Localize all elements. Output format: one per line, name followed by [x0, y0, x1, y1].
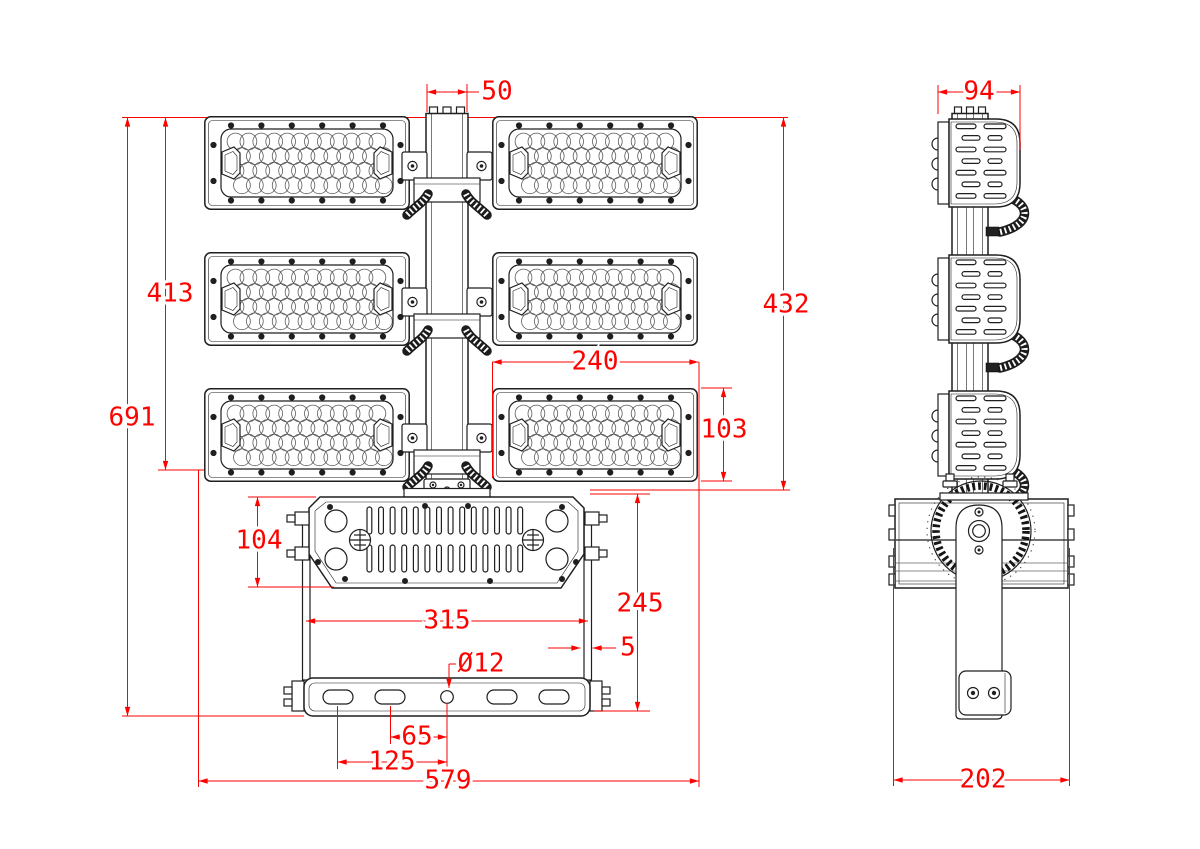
dim-yoke-arm-thickness-label: 5 — [620, 633, 636, 663]
dim-driver-box-height-label: 104 — [236, 526, 283, 556]
led-module-front — [205, 389, 409, 481]
dim-module-width-label: 240 — [572, 347, 619, 377]
side-view — [889, 107, 1074, 719]
led-module-side — [932, 391, 1020, 479]
arm-end-plate — [959, 671, 1011, 715]
technical-drawing: 50 413 691 432 240 103 104 315 245 — [0, 0, 1200, 849]
dim-modules-stack-height-label: 413 — [147, 279, 194, 309]
dim-pivot-to-base-height-label: 245 — [617, 589, 664, 619]
led-module-front — [205, 117, 409, 209]
dim-pole-top-width-label: 50 — [481, 77, 512, 107]
led-module-front — [205, 253, 409, 345]
led-module-front — [493, 117, 697, 209]
dim-overall-width-label: 579 — [425, 766, 472, 796]
mounting-pole — [426, 107, 468, 499]
led-module-side — [932, 119, 1020, 207]
driver-box — [287, 497, 607, 588]
led-module-side — [932, 255, 1020, 343]
dim-yoke-inner-width-label: 315 — [424, 606, 471, 636]
led-module-front — [493, 389, 697, 481]
dim-module-height-label: 103 — [701, 415, 748, 445]
drawing-page: 50 413 691 432 240 103 104 315 245 — [0, 0, 1200, 849]
driver-box-side — [889, 474, 1074, 719]
dim-modules-to-driver-box-label: 432 — [763, 290, 810, 320]
led-module-front — [493, 253, 697, 345]
ground-symbol — [523, 530, 544, 551]
ground-symbol — [350, 530, 371, 551]
dim-overall-height-label: 691 — [109, 403, 156, 433]
dim-slot-offset-outer-label: 125 — [369, 747, 416, 777]
dim-mounting-hole-diameter-label: Ø12 — [458, 649, 505, 679]
dim-module-depth-label: 94 — [963, 77, 994, 107]
dim-overall-depth-label: 202 — [960, 765, 1007, 795]
yoke-arm-right — [584, 520, 592, 680]
